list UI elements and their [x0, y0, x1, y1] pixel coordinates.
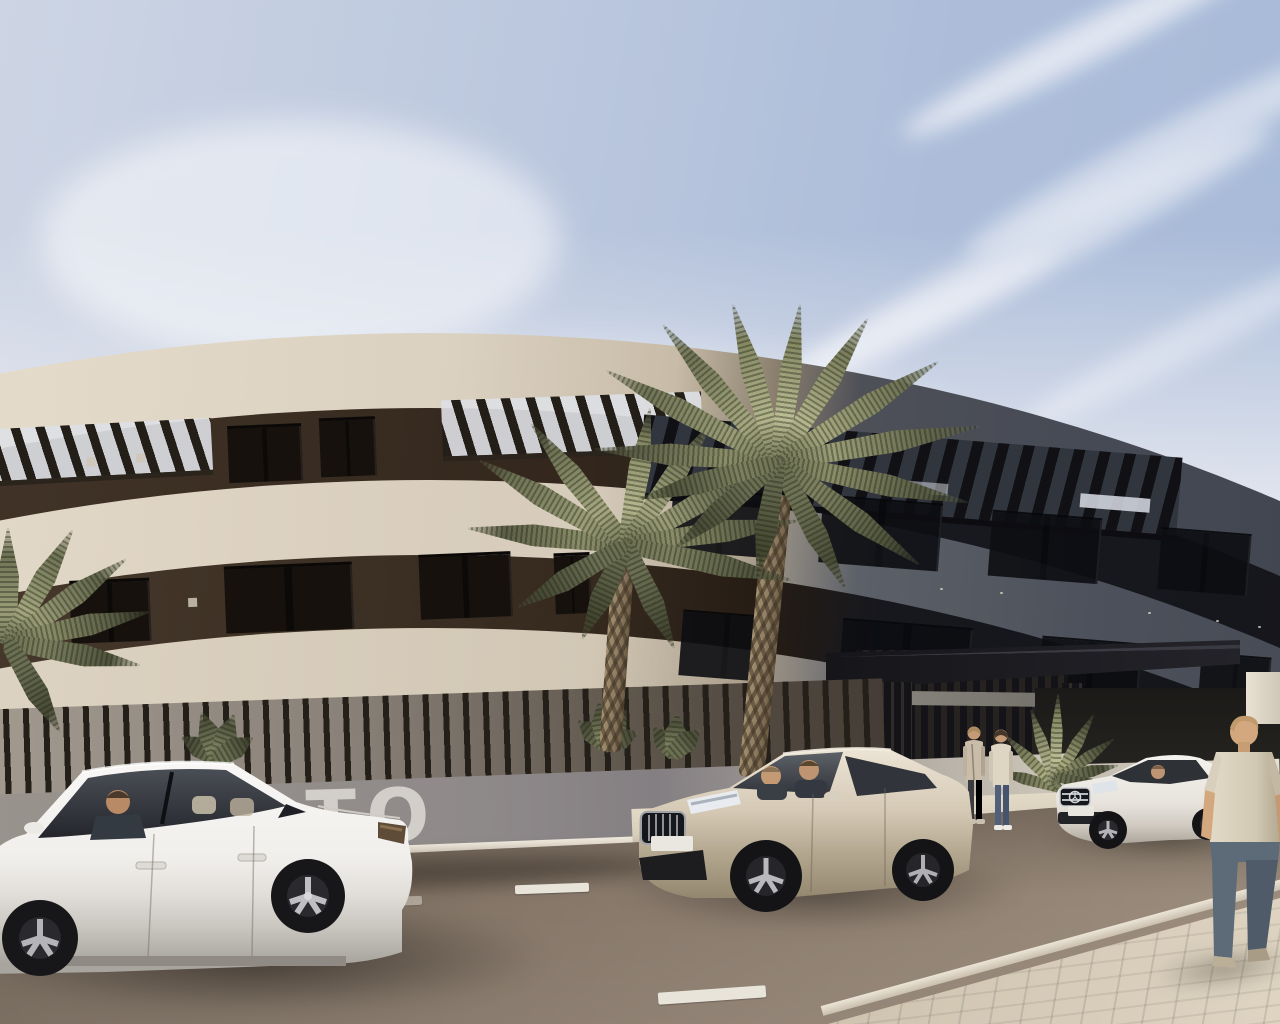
jeans-hips — [1210, 842, 1280, 862]
champagne-suv — [633, 730, 985, 926]
facade-vent — [86, 457, 95, 466]
rear-wheel — [892, 839, 954, 901]
driver-torso — [795, 780, 827, 798]
facade-vent — [136, 453, 145, 462]
downlight — [1000, 592, 1003, 594]
passenger-torso — [757, 784, 787, 800]
window — [224, 562, 355, 634]
window — [319, 416, 377, 477]
window — [988, 510, 1103, 584]
downlight — [940, 588, 943, 590]
side-mirror — [824, 791, 842, 801]
neck — [1238, 742, 1250, 752]
front-wheel — [730, 840, 802, 912]
headrest — [230, 798, 254, 816]
front-wheel — [1089, 811, 1127, 849]
jeans-leg — [1212, 860, 1238, 958]
front-wheel — [2, 900, 78, 976]
window — [418, 551, 513, 620]
downlight — [1258, 626, 1261, 628]
door-handle — [136, 862, 166, 869]
downlight — [1148, 612, 1151, 614]
man-walking-foreground — [1190, 710, 1280, 985]
side-mirror — [24, 822, 44, 834]
downlight — [1216, 620, 1219, 622]
facade-vent — [188, 598, 197, 607]
door-handle — [238, 854, 266, 861]
sweater — [991, 744, 1011, 788]
rear-wheel — [271, 859, 345, 933]
driver-torso — [90, 814, 146, 840]
architectural-render-scene: TO — [0, 0, 1280, 1024]
pedestrian-cream-sweater — [983, 727, 1019, 833]
jeans-leg — [1003, 785, 1009, 826]
headrest — [192, 796, 216, 814]
shoe — [1248, 948, 1270, 962]
license-plate — [1068, 806, 1094, 816]
shoe — [1003, 825, 1012, 830]
jeans-leg — [995, 785, 1001, 826]
license-plate — [651, 836, 693, 851]
arm — [1009, 751, 1013, 781]
window — [227, 423, 303, 483]
window — [1157, 527, 1252, 596]
arm — [989, 751, 993, 781]
shoe — [994, 825, 1003, 830]
shoe — [1212, 956, 1236, 968]
rocker-panel — [56, 956, 346, 966]
jeans-leg — [1246, 860, 1278, 952]
white-sedan — [0, 742, 416, 992]
